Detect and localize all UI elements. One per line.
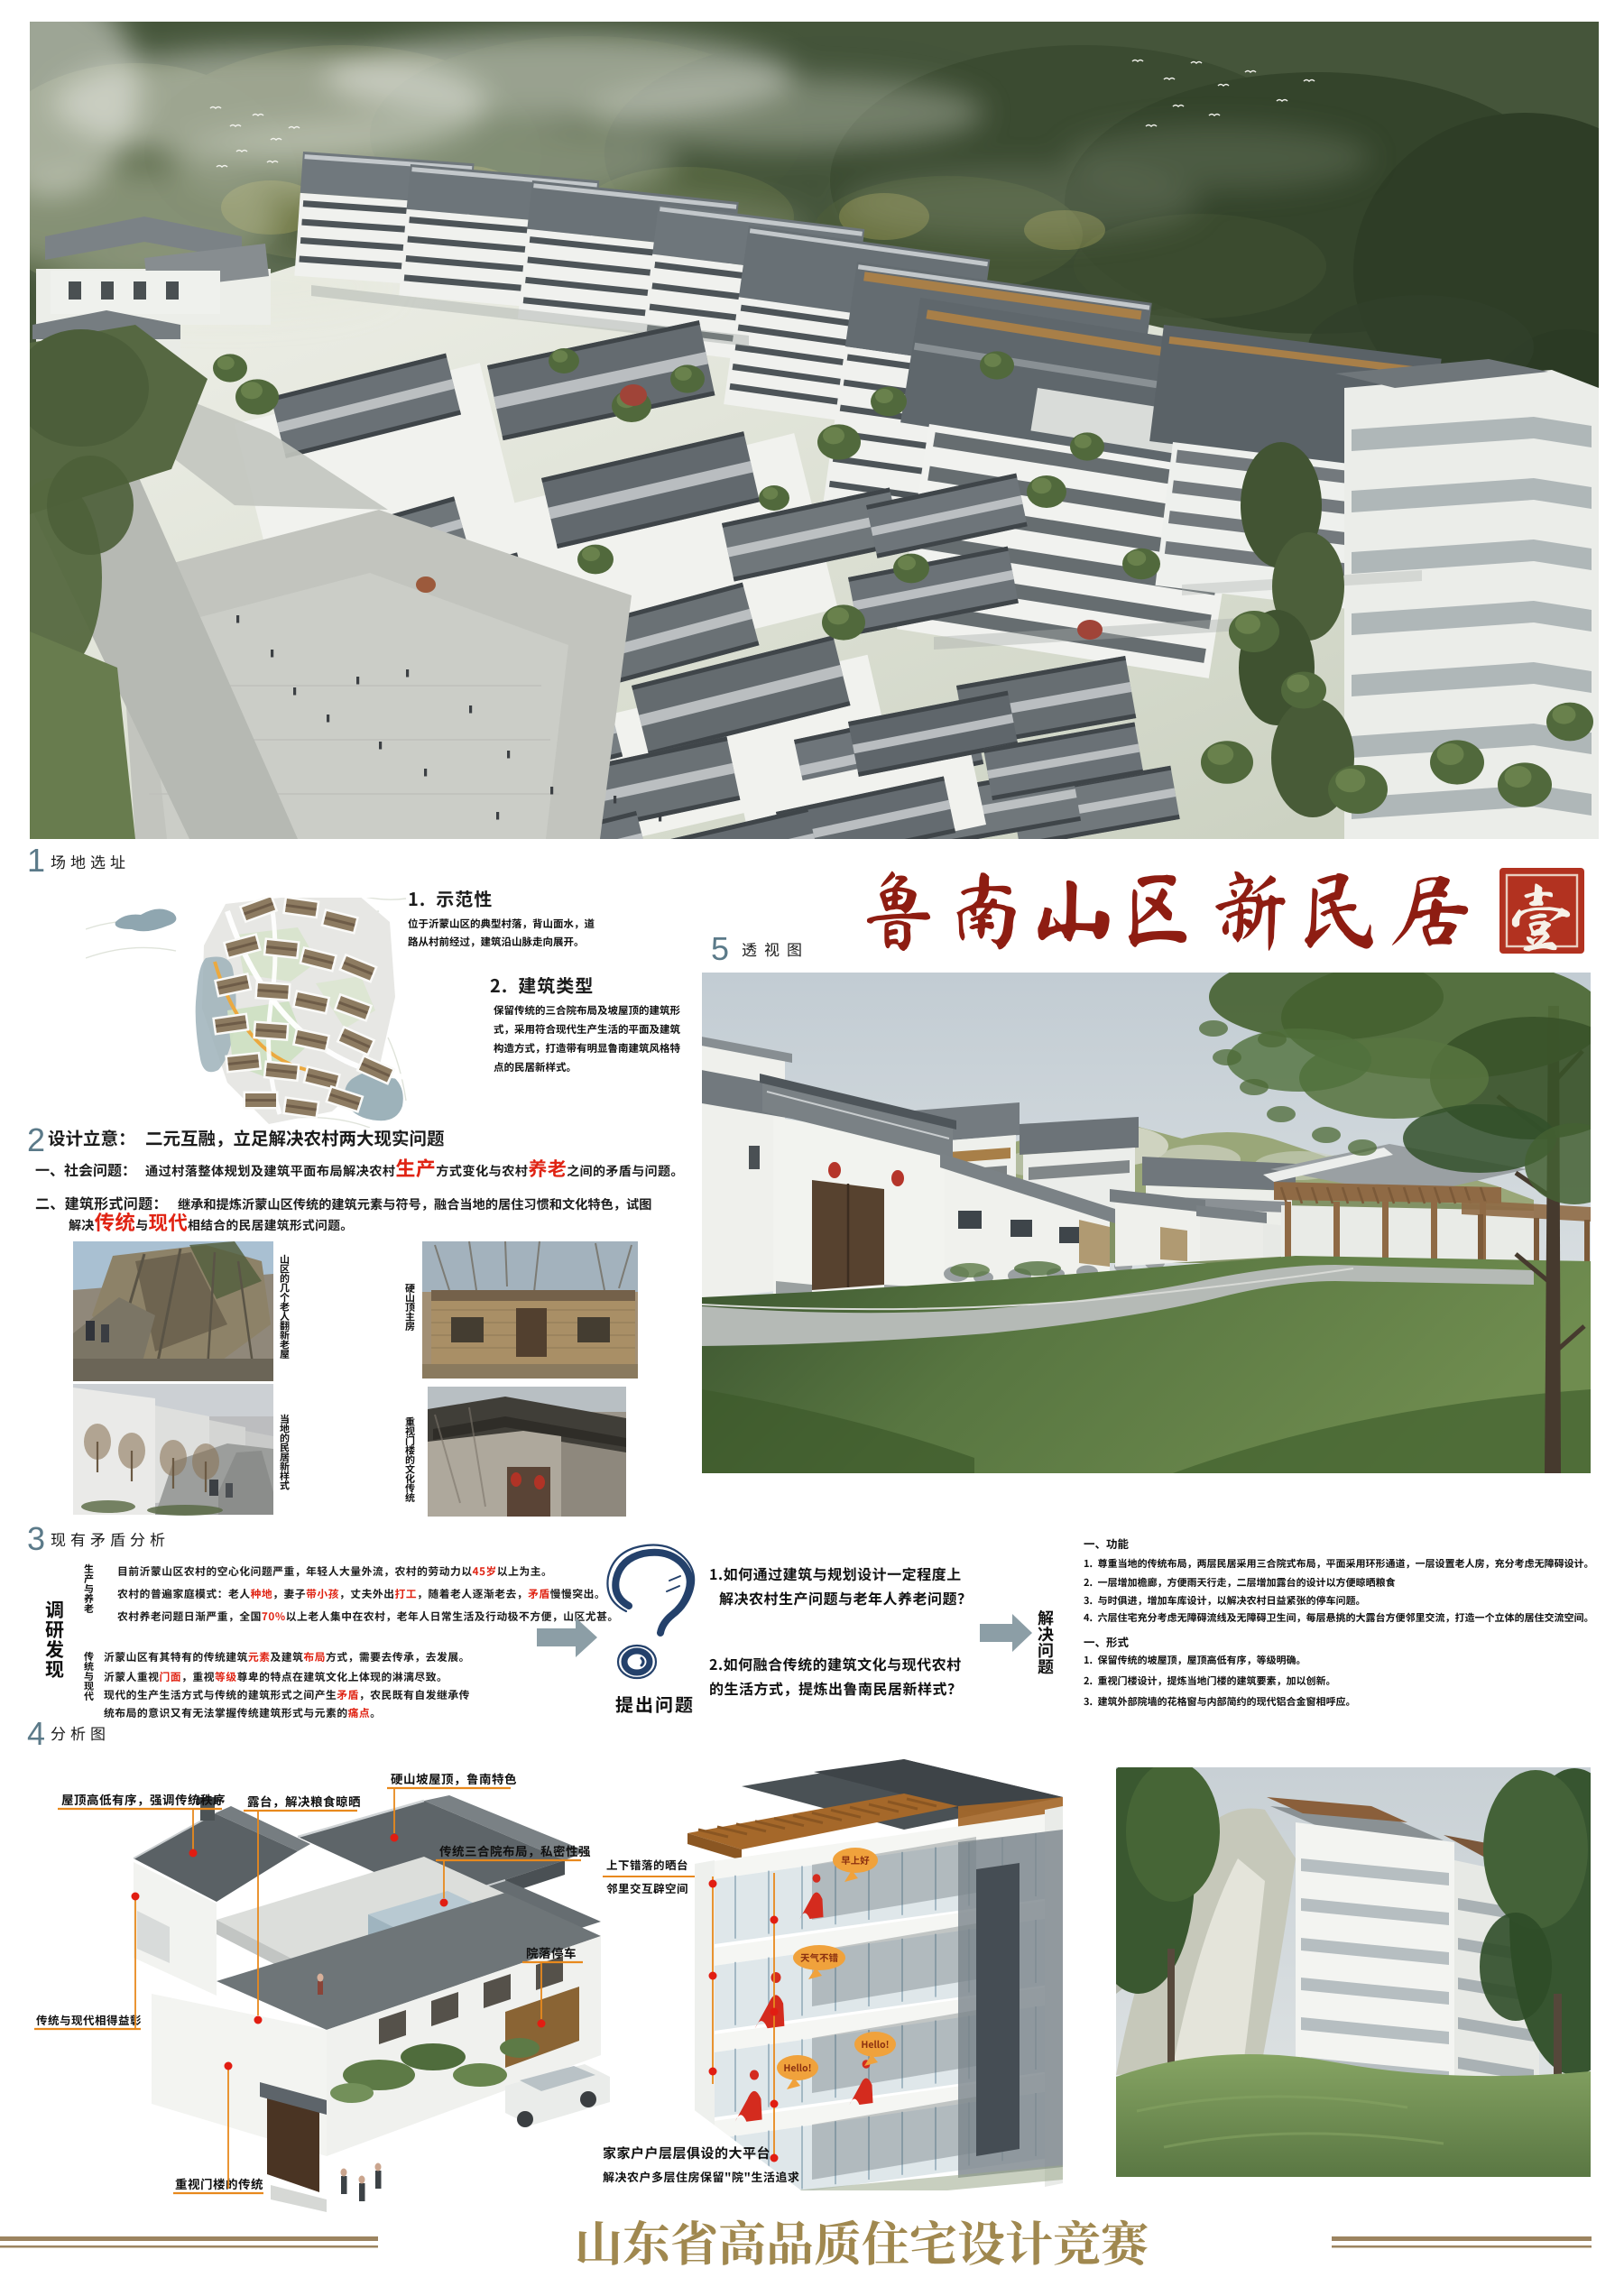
svg-text:4: 4 bbox=[27, 1715, 45, 1752]
svg-text:3: 3 bbox=[27, 1520, 45, 1557]
svg-text:5: 5 bbox=[711, 930, 729, 967]
svg-text:2: 2 bbox=[27, 1121, 45, 1158]
svg-text:1: 1 bbox=[27, 842, 45, 879]
